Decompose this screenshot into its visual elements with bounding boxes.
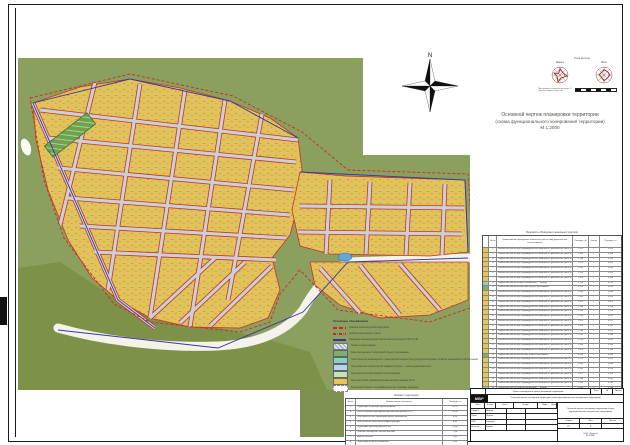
plot-number: 21 (489, 344, 497, 348)
balance-row-number: 2 (346, 411, 356, 415)
plot-note: 0,151 (600, 248, 621, 252)
plot-area: 1 500 (573, 368, 588, 372)
legend-item: Земли лесного фонда (333, 343, 481, 350)
plot-count: 1 (589, 253, 600, 257)
legend-item: Зона объектов инженерной и транспортной … (333, 357, 481, 364)
plot-count: 1 (589, 368, 600, 372)
plot-area: 1 478 (573, 277, 588, 281)
stamp-column-label: Кол.уч (485, 403, 496, 408)
plot-name: Земельный участок для индивидуального жи… (497, 262, 573, 266)
sheet-inner-margin-line (15, 8, 16, 437)
balance-row-name: Зона застройки индивидуальными жилыми до… (356, 411, 443, 415)
compass-star (402, 59, 458, 112)
plot-note: 0,152 (600, 301, 621, 305)
plot-number: 26 (489, 368, 497, 372)
plots-header-note: Площадь, га (600, 236, 621, 247)
stamp-column-label: Подп. (538, 403, 551, 408)
stamp-roles: Разраб. Иванов Пров. Петров (471, 409, 557, 431)
plot-number: 5 (489, 267, 497, 271)
balance-caption: Баланс территории (345, 394, 468, 397)
plot-name: Земельный участок для индивидуального жи… (497, 277, 573, 281)
balance-header-value: Площадь, га (443, 399, 467, 405)
stamp-organization: ООО «Проект» М 1:2000 (558, 429, 623, 441)
balance-row: 8 Территории общего пользования 1,40 (346, 441, 467, 445)
plot-name: Земельный участок для индивидуального жи… (497, 339, 573, 343)
plot-area: 1 508 (573, 330, 588, 334)
stamp-role-signature (507, 409, 526, 414)
plot-count: 1 (589, 325, 600, 329)
plot-note: 0,151 (600, 330, 621, 334)
plot-name: Земельный участок для индивидуального жи… (497, 363, 573, 367)
plot-note: 0,147 (600, 320, 621, 324)
plot-area: 1 476 (573, 349, 588, 353)
drawing-title-block: Основной чертеж планировки территории (с… (476, 112, 624, 130)
stamp-subtitle: Основной чертеж планировки территории (с… (488, 395, 623, 402)
plot-name: Земельный участок для индивидуального жи… (497, 358, 573, 362)
plot-count: 1 (589, 349, 600, 353)
plot-number: 8 (489, 282, 497, 286)
balance-row-number: 6 (346, 431, 356, 435)
plot-area: 1 504 (573, 382, 588, 386)
plot-name: Земельный участок для индивидуального жи… (497, 378, 573, 382)
legend-title: Условные обозначения (333, 319, 481, 323)
plots-header-count: Кол-во (589, 236, 600, 247)
plot-area: 3 640 (573, 354, 588, 358)
stamp-column-label: Изм. (471, 403, 485, 408)
plot-count: 1 (589, 339, 600, 343)
north-compass: N (400, 50, 460, 116)
plot-number: 19 (489, 334, 497, 338)
plot-number: 25 (489, 363, 497, 367)
plot-note: 0,153 (600, 315, 621, 319)
stamp-top-cell-2: № (602, 389, 613, 394)
plot-number: 7 (489, 277, 497, 281)
stamp-scale: М 1:2000 (586, 435, 595, 438)
plot-note: 0,152 (600, 339, 621, 343)
legend-swatch (333, 364, 348, 371)
legend-item-label: Зона объектов транспортной инфраструктур… (351, 366, 481, 369)
plot-area: 1 500 (573, 310, 588, 314)
plot-number: 12 (489, 301, 497, 305)
plot-note: 0,148 (600, 349, 621, 353)
sheets-total-value (602, 424, 623, 428)
legend-item-label: Зона застройки индивидуальными жилыми до… (351, 380, 481, 383)
plot-name: Земельный участок для индивидуального жи… (497, 349, 573, 353)
plot-number: 22 (489, 349, 497, 353)
plot-area: 1 495 (573, 325, 588, 329)
plot-name: Земельный участок для индивидуального жи… (497, 296, 573, 300)
plot-name: Земельный участок для индивидуального жи… (497, 330, 573, 334)
plot-count: 1 (589, 296, 600, 300)
plot-note: 0,523 (600, 286, 621, 290)
plot-count: 1 (589, 358, 600, 362)
plot-area: 1 512 (573, 248, 588, 252)
balance-row-number: 8 (346, 441, 356, 445)
legend-item-label: Зона сельскохозяйственного использования (351, 373, 481, 376)
plot-name: Земельный участок для индивидуального жи… (497, 301, 573, 305)
plot-name: Земельный участок для индивидуального жи… (497, 253, 573, 257)
stamp-column-label: Лист (496, 403, 514, 408)
plot-count: 1 (589, 315, 600, 319)
legend-item-label: Охранная зона воздушной линии электропер… (349, 339, 481, 342)
plot-area: 5 230 (573, 286, 588, 290)
legend: Условные обозначения Граница проектируем… (333, 319, 481, 392)
legend-swatch (333, 339, 346, 340)
stamp-column-label: Дата (551, 403, 557, 408)
plot-number: 27 (489, 373, 497, 377)
balance-row-number: 3 (346, 416, 356, 420)
legend-item-label: Граница населенного пункта (349, 333, 481, 336)
plot-area: 1 515 (573, 301, 588, 305)
balance-row-value: 0,85 (443, 421, 467, 425)
balance-row-name: Водные объекты (356, 436, 443, 440)
plot-number: 9 (489, 286, 497, 290)
plot-count: 1 (589, 330, 600, 334)
stamp-role-name: Иванов (486, 409, 508, 414)
plot-area: 1 488 (573, 306, 588, 310)
plot-number: 3 (489, 258, 497, 262)
plot-name: Земельный участок для индивидуального жи… (497, 310, 573, 314)
wind-rose-caption: Роза ветров (538, 56, 626, 60)
balance-row-name: Зона объектов инженерной инфраструктуры (356, 421, 443, 425)
balance-row-value: 12,40 (443, 426, 467, 430)
balance-row-name: Территории общего пользования (356, 441, 443, 445)
plot-note: 0,150 (600, 382, 621, 386)
plot-note: 0,149 (600, 291, 621, 295)
plots-header-number: № п/п (489, 236, 497, 247)
plot-note: 0,150 (600, 310, 621, 314)
legend-item-label: Зона озелененных территорий общего польз… (351, 352, 481, 355)
plot-number: 28 (489, 378, 497, 382)
legend-item-label: Территории общего пользования (улицы, пр… (351, 387, 481, 390)
plot-number: 2 (489, 253, 497, 257)
drawing-title-line2: (схема функционального зонирования терри… (476, 119, 624, 125)
plot-count: 1 (589, 378, 600, 382)
stamp-role-name: Козлов (486, 425, 508, 430)
stamp-signatures-grid: Изм.Кол.учЛист№ док.Подп.Дата Разраб. Ив… (471, 403, 558, 441)
legend-item: Зона застройки индивидуальными жилыми до… (333, 378, 481, 385)
legend-item-label: Зона объектов инженерной и транспортной … (351, 359, 481, 362)
balance-body: 1 Территория в границах проектирования 8… (346, 406, 467, 445)
plot-area: 1 500 (573, 344, 588, 348)
wind-note-2: Средняя скорость ветра, м/с (538, 90, 572, 92)
plot-count: 1 (589, 282, 600, 286)
balance-row-number: 1 (346, 406, 356, 410)
balance-row-name: Зеленые насаждения, лесные массивы (356, 431, 443, 435)
plots-table-header: № п/п Наименование образуемого земельног… (483, 236, 621, 248)
plot-name: Земельный участок для индивидуального жи… (497, 334, 573, 338)
plot-number: 4 (489, 262, 497, 266)
legend-item: Зона озелененных территорий общего польз… (333, 350, 481, 357)
balance-row-value: 82,70 (443, 406, 467, 410)
plot-note: 0,149 (600, 363, 621, 367)
plot-number: 24 (489, 358, 497, 362)
plot-note: 0,149 (600, 253, 621, 257)
plot-count: 1 (589, 272, 600, 276)
plot-count: 1 (589, 258, 600, 262)
plot-area: 1 511 (573, 358, 588, 362)
balance-row-value: 1,40 (443, 441, 467, 445)
stamp-stage-block: Стадия П Лист 1 Листов (558, 419, 623, 429)
plot-count: 1 (589, 291, 600, 295)
plot-note: 0,153 (600, 373, 621, 377)
balance-row-name: Территория в границах проектирования (356, 406, 443, 410)
balance-header-number: № п/п (346, 399, 356, 405)
legend-item: Территории общего пользования (улицы, пр… (333, 385, 481, 392)
gost-title-stamp: Проект планировки и проект межевания тер… (470, 388, 624, 442)
plot-note: 0,150 (600, 267, 621, 271)
plots-table-caption: Ведомость образуемых земельных участков (482, 231, 622, 234)
stamp-role-title: Н.контр. (471, 425, 486, 430)
plot-name: Земельный участок озеленения общего поль… (497, 354, 573, 358)
plot-area: 1 527 (573, 373, 588, 377)
plot-count: 1 (589, 354, 600, 358)
wind-rose-july: Июль (594, 61, 614, 86)
legend-item: Зона объектов транспортной инфраструктур… (333, 364, 481, 371)
plot-area: 1 482 (573, 334, 588, 338)
north-label-glyph: N (428, 53, 432, 59)
territory-balance-table: Баланс территории № п/п Наименование пок… (345, 394, 468, 445)
stamp-top-cell-3: Листов (613, 389, 623, 394)
wind-rose-january: Январь (550, 61, 570, 86)
plot-area: 1 534 (573, 315, 588, 319)
map-green-extension (300, 390, 344, 437)
balance-row-number: 4 (346, 421, 356, 425)
plot-note: 0,364 (600, 354, 621, 358)
legend-item-label: Граница проектируемой территории (349, 327, 481, 330)
plot-note: 0,150 (600, 258, 621, 262)
plot-name: Земельный участок для индивидуального жи… (497, 368, 573, 372)
plot-name: Земельный участок для индивидуального жи… (497, 272, 573, 276)
stamp-role-date (526, 414, 558, 419)
wind-rose-july-diagram (594, 65, 614, 85)
plot-name: Земельный участок общего пользования — п… (497, 282, 573, 286)
stamp-role-row: Н.контр. Козлов (471, 425, 557, 431)
balance-header: № п/п Наименование показателя Площадь, г… (346, 399, 467, 406)
plot-area: 1 523 (573, 262, 588, 266)
plot-number: 23 (489, 354, 497, 358)
plot-count: 1 (589, 320, 600, 324)
plot-count: 1 (589, 373, 600, 377)
plot-note: 0,150 (600, 344, 621, 348)
balance-row-value: 54,30 (443, 411, 467, 415)
stamp-role-signature (507, 420, 526, 425)
drawing-title-scale: М 1:2000 (476, 125, 624, 130)
plot-count: 1 (589, 301, 600, 305)
plot-name: Земельный участок для индивидуального жи… (497, 344, 573, 348)
balance-row-number: 5 (346, 426, 356, 430)
balance-row-value: 7,10 (443, 431, 467, 435)
plot-area: 1 470 (573, 320, 588, 324)
stamp-role-name: Сидоров (486, 420, 508, 425)
plot-area: 1 490 (573, 291, 588, 295)
balance-row-number: 7 (346, 436, 356, 440)
plot-count: 1 (589, 310, 600, 314)
plot-area: 1 497 (573, 267, 588, 271)
plot-area: 2 150 (573, 282, 588, 286)
stamp-project-name: Проект планировки и проект межевания тер… (486, 389, 591, 394)
plot-name: Земельный участок для индивидуального жи… (497, 315, 573, 319)
plot-note: 0,148 (600, 277, 621, 281)
plot-count: 1 (589, 382, 600, 386)
plot-note: 0,149 (600, 306, 621, 310)
plot-name: Земельный участок для индивидуального жи… (497, 325, 573, 329)
stamp-role-title: Пров. (471, 414, 486, 419)
plot-count: 1 (589, 286, 600, 290)
stamp-role-name: Петров (486, 414, 508, 419)
wind-notes: Повторяемость направлений ветра, % Средн… (538, 88, 572, 93)
stamp-logo-row: МВР Основной чертеж планировки территори… (471, 395, 623, 403)
plot-number: 1 (489, 248, 497, 252)
plot-count: 1 (589, 262, 600, 266)
plot-number: 15 (489, 315, 497, 319)
plot-area: 1 466 (573, 378, 588, 382)
legend-swatch (333, 333, 346, 335)
stamp-role-signature (507, 414, 526, 419)
plot-name: Земельный участок для индивидуального жи… (497, 267, 573, 271)
plot-number: 17 (489, 325, 497, 329)
plot-note: 0,147 (600, 378, 621, 382)
plot-note: 0,152 (600, 262, 621, 266)
legend-swatch (333, 327, 346, 329)
plot-number: 6 (489, 272, 497, 276)
plot-count: 1 (589, 248, 600, 252)
stamp-role-signature (507, 425, 526, 430)
plot-note: 0,150 (600, 368, 621, 372)
plot-name: Земельный участок для индивидуального жи… (497, 248, 573, 252)
legend-swatch (333, 378, 348, 385)
pond-blue (338, 253, 352, 261)
balance-row-name: Территория улично-дорожной сети (356, 426, 443, 430)
planning-drawing-sheet: N Роза ветров Январь (0, 0, 630, 445)
plots-header-name: Наименование образуемого земельного учас… (497, 236, 573, 247)
plot-name: Земельный участок для индивидуального жи… (497, 320, 573, 324)
plot-note: 0,151 (600, 272, 621, 276)
plot-area: 1 519 (573, 339, 588, 343)
plot-count: 1 (589, 306, 600, 310)
stamp-document-title: Основной чертеж планировки территории (с… (558, 403, 623, 419)
plot-area: 1 500 (573, 258, 588, 262)
plot-count: 1 (589, 334, 600, 338)
plot-name: Земельный участок для индивидуального жи… (497, 291, 573, 295)
plot-name: Земельный участок для индивидуального жи… (497, 373, 573, 377)
plots-header-area: Площадь, м² (573, 236, 588, 247)
stamp-role-date (526, 420, 558, 425)
plot-note: 0,151 (600, 358, 621, 362)
plot-name: Земельный участок для индивидуального жи… (497, 382, 573, 386)
balance-row-value: 6,20 (443, 416, 467, 420)
plot-count: 1 (589, 267, 600, 271)
stamp-top-cell-1: Лист (591, 389, 602, 394)
stamp-role-date (526, 409, 558, 414)
balance-row-value: 0,45 (443, 436, 467, 440)
plot-name: Земельный участок для индивидуального жи… (497, 258, 573, 262)
wind-rose-january-diagram (550, 65, 570, 85)
legend-item-label: Земли лесного фонда (351, 345, 481, 348)
wind-rose-panel: Роза ветров Январь Июль (538, 56, 626, 110)
plot-count: 1 (589, 363, 600, 367)
plot-area: 1 505 (573, 272, 588, 276)
linear-scale-bar (575, 88, 617, 93)
plot-number: 29 (489, 382, 497, 386)
plot-number: 18 (489, 330, 497, 334)
sheet-fold-mark (0, 297, 7, 325)
plot-number: 20 (489, 339, 497, 343)
plot-number: 13 (489, 306, 497, 310)
legend-swatch (333, 385, 348, 392)
plot-number: 14 (489, 310, 497, 314)
plot-number: 16 (489, 320, 497, 324)
legend-swatch (333, 350, 348, 357)
plot-number: 11 (489, 296, 497, 300)
plot-area: 1 493 (573, 363, 588, 367)
plot-note: 0,150 (600, 325, 621, 329)
stamp-column-label: № док. (514, 403, 538, 408)
plot-name: Земельный участок для индивидуального жи… (497, 306, 573, 310)
stamp-role-title: Разраб. (471, 409, 486, 414)
plot-note: 0,150 (600, 296, 621, 300)
stamp-top-cell-blank (471, 389, 486, 394)
plot-number: 10 (489, 291, 497, 295)
plot-note: 0,215 (600, 282, 621, 286)
plot-area: 1 502 (573, 296, 588, 300)
legend-swatch (333, 357, 348, 364)
plot-area: 1 485 (573, 253, 588, 257)
plot-count: 1 (589, 344, 600, 348)
legend-swatch (333, 371, 348, 378)
legend-item: Зона сельскохозяйственного использования (333, 371, 481, 378)
legend-swatch (333, 343, 348, 350)
stamp-role-title: ГАП (471, 420, 486, 425)
plot-note: 0,148 (600, 334, 621, 338)
balance-row-name: Зона озелененных территорий общего польз… (356, 416, 443, 420)
company-logo: МВР (471, 395, 488, 402)
plot-name: Земельный участок озеленения общего поль… (497, 286, 573, 290)
stamp-role-date (526, 425, 558, 430)
balance-header-name: Наименование показателя (356, 399, 443, 405)
plot-count: 1 (589, 277, 600, 281)
